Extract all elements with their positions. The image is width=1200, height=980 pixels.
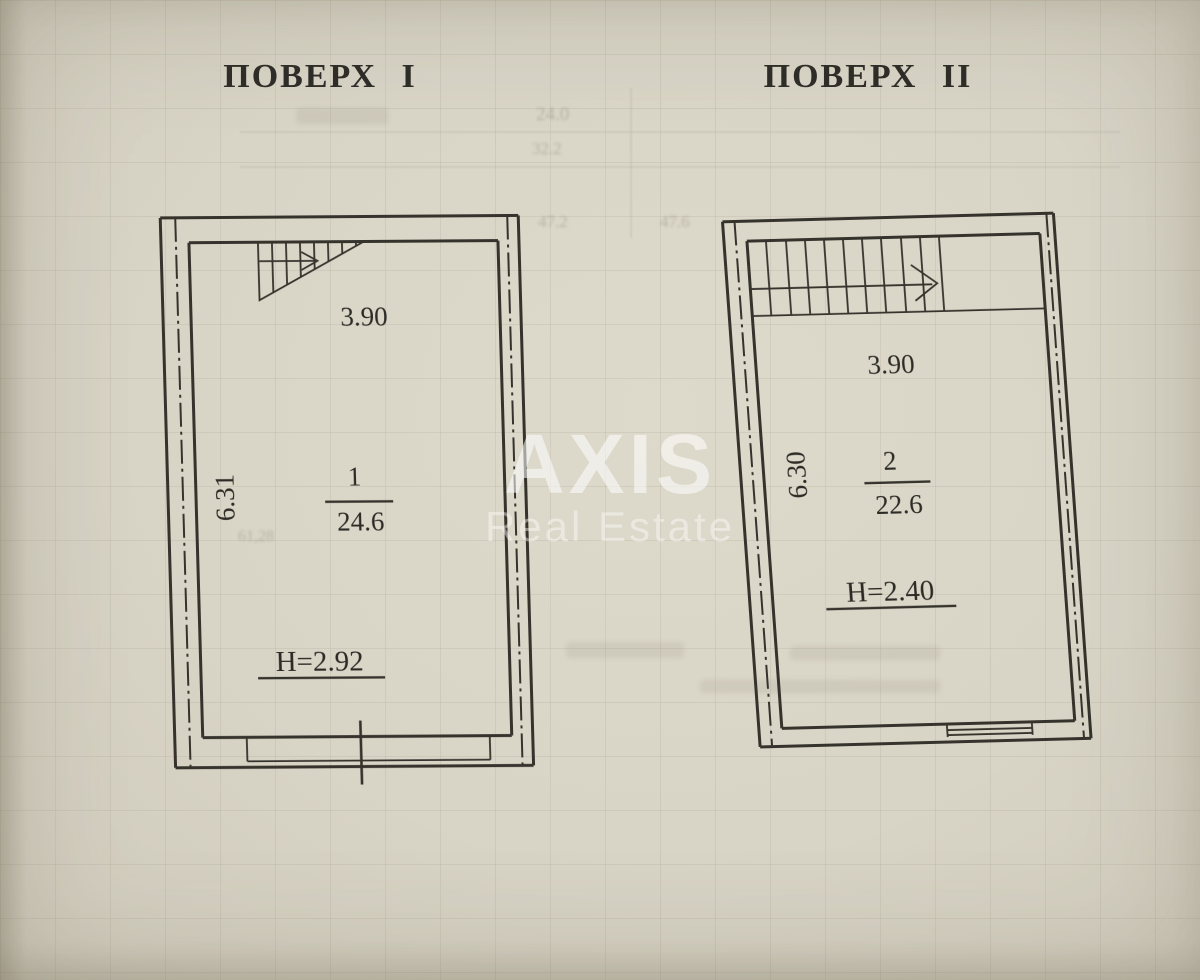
photo-vignette (0, 0, 1200, 980)
